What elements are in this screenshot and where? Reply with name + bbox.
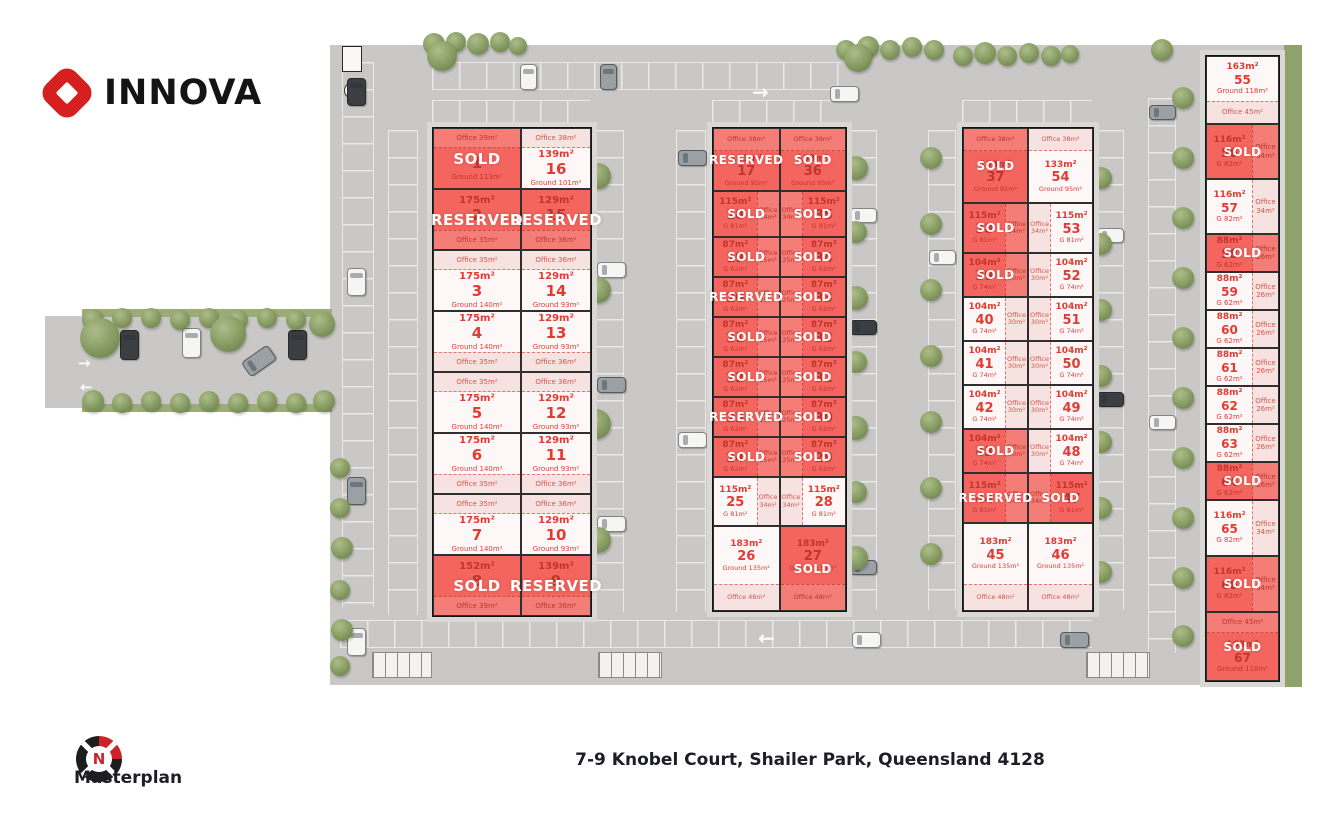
car-icon [600, 64, 617, 90]
tree-icon [953, 46, 973, 66]
unit-area: 104m² [968, 390, 1000, 401]
tree-icon [924, 40, 944, 60]
car-icon [678, 432, 707, 448]
east-green-strip [1284, 45, 1302, 687]
unit-area: 104m² [1055, 258, 1087, 269]
unit-37[interactable]: Office 38m²133m²37Ground 95m²SOLD [963, 128, 1028, 203]
status-badge: SOLD [781, 129, 846, 190]
unit-area: 104m² [1055, 390, 1087, 401]
unit-info: 88m²60G 62m² [1207, 311, 1252, 347]
status-badge: SOLD [714, 192, 779, 236]
unit-12[interactable]: Office 36m²129m²12Ground 93m² [521, 372, 591, 433]
status-badge: SOLD [781, 318, 846, 356]
ground-area: G 62m² [1216, 413, 1242, 421]
unit-number: 12 [546, 405, 567, 423]
unit-62[interactable]: 88m²62G 62m²Office 26m² [1206, 386, 1279, 424]
tree-icon [844, 416, 868, 440]
unit-number: 11 [546, 447, 567, 465]
masterplan-page: INNOVA →←→←Office 39m²1Ground 113m²SOLDO… [0, 0, 1338, 814]
unit-18[interactable]: 115m²18G 81m²Office 34m²SOLD [713, 191, 780, 237]
tree-icon [199, 391, 219, 411]
ground-area: Ground 93m² [533, 465, 580, 473]
car-icon [1149, 415, 1176, 430]
tree-icon [467, 33, 489, 55]
tree-icon [1061, 45, 1079, 63]
unit-52[interactable]: Office 30m²104m²52G 74m² [1028, 253, 1093, 297]
unit-7[interactable]: Office 35m²175m²7Ground 140m² [433, 494, 521, 555]
unit-info: 88m²62G 62m² [1207, 387, 1252, 423]
office-area-label: Office 30m² [1029, 430, 1051, 472]
car-icon [597, 262, 626, 278]
office-area-label: Office 30m² [1029, 254, 1051, 296]
unit-51[interactable]: Office 30m²104m²51G 74m² [1028, 297, 1093, 341]
ground-area: G 74m² [1059, 460, 1083, 468]
tree-icon [1172, 447, 1194, 469]
unit-58[interactable]: 88m²58G 62m²Office 26m²SOLD [1206, 234, 1279, 272]
unit-2[interactable]: 175m²2Office 35m²RESERVED [433, 189, 521, 250]
office-area-label: Office 48m² [1029, 584, 1092, 610]
unit-23[interactable]: 87m²23G 62m²Office 25m²RESERVED [713, 397, 780, 437]
tree-icon [80, 318, 120, 358]
tree-icon [1172, 267, 1194, 289]
car-icon [678, 150, 707, 166]
ground-area: Ground 140m² [452, 423, 503, 431]
unit-number: 42 [975, 401, 993, 416]
car-icon [347, 477, 366, 505]
unit-info: 104m²42G 74m² [964, 386, 1005, 428]
unit-info: 139m²16Ground 101m² [522, 148, 590, 188]
tree-icon [313, 390, 335, 412]
tree-icon [844, 156, 868, 180]
unit-5[interactable]: Office 35m²175m²5Ground 140m² [433, 372, 521, 433]
unit-46[interactable]: 183m²46Ground 135m²Office 48m² [1028, 523, 1093, 611]
unit-number: 25 [726, 495, 744, 510]
parking-stalls [676, 130, 706, 612]
unit-number: 5 [472, 405, 482, 423]
office-area-label: Office 26m² [1252, 387, 1278, 423]
car-icon [288, 330, 307, 360]
unit-number: 6 [472, 447, 482, 465]
status-badge: SOLD [1207, 613, 1278, 680]
unit-20[interactable]: 87m²20G 62m²Office 25m²RESERVED [713, 277, 780, 317]
parking-stalls [432, 62, 842, 90]
unit-number: 14 [546, 283, 567, 301]
office-area-label: Office 34m² [1252, 501, 1278, 555]
tree-icon [257, 391, 277, 411]
unit-number: 52 [1062, 269, 1080, 284]
tree-icon [427, 41, 457, 71]
tree-icon [330, 458, 350, 478]
unit-info: 183m²26Ground 135m² [714, 527, 779, 584]
ground-area: Ground 95m² [1039, 186, 1082, 194]
unit-53[interactable]: Office 34m²115m²53G 81m² [1028, 203, 1093, 253]
office-area-label: Office 45m² [1207, 101, 1278, 123]
unit-area: 183m² [979, 537, 1011, 548]
unit-27[interactable]: 183m²27Ground 135m²Office 48m²SOLD [780, 526, 847, 611]
tree-icon [170, 393, 190, 413]
status-badge: SOLD [781, 438, 846, 476]
tree-icon [1172, 567, 1194, 589]
unit-61[interactable]: 88m²61G 62m²Office 26m² [1206, 348, 1279, 386]
car-icon [929, 250, 956, 265]
unit-21[interactable]: 87m²21G 62m²Office 25m²SOLD [713, 317, 780, 357]
tree-icon [330, 656, 350, 676]
ground-area: G 82m² [1216, 215, 1242, 223]
unit-54[interactable]: Office 38m²133m²54Ground 95m² [1028, 128, 1093, 203]
tree-icon [286, 310, 306, 330]
unit-number: 62 [1221, 399, 1238, 413]
unit-39[interactable]: 104m²39G 74m²Office 30m²SOLD [963, 253, 1028, 297]
unit-19[interactable]: 87m²19G 62m²Office 25m²SOLD [713, 237, 780, 277]
tree-icon [170, 310, 190, 330]
car-icon [830, 86, 859, 102]
ground-area: G 62m² [1216, 299, 1242, 307]
office-area-label: Office 38m² [1029, 129, 1092, 151]
unit-info: 133m²54Ground 95m² [1029, 151, 1092, 202]
office-area-label: Office 35m² [434, 495, 520, 514]
office-area-label: Office 26m² [1252, 311, 1278, 347]
storage-units [372, 652, 432, 678]
unit-info: 115m²25G 81m² [714, 478, 757, 525]
tree-icon [1172, 507, 1194, 529]
parking-stalls [1148, 98, 1176, 653]
car-icon [850, 320, 877, 335]
office-area-label: Office 34m² [757, 478, 779, 525]
unit-number: 4 [472, 325, 482, 343]
unit-29[interactable]: Office 25m²87m²29G 62m²SOLD [780, 437, 847, 477]
parking-stalls [962, 100, 1092, 128]
tree-icon [920, 543, 942, 565]
status-badge: SOLD [781, 238, 846, 276]
car-icon [1097, 392, 1124, 407]
signage-icon [342, 46, 362, 72]
ground-area: G 81m² [723, 511, 747, 519]
unit-56[interactable]: 116m²56G 82m²Office 34m²SOLD [1206, 124, 1279, 179]
unit-11[interactable]: 129m²11Ground 93m²Office 36m² [521, 433, 591, 494]
traffic-arrow-icon: → [752, 82, 769, 102]
status-badge: SOLD [781, 527, 846, 610]
unit-30[interactable]: Office 25m²87m²30G 62m²SOLD [780, 397, 847, 437]
office-area-label: Office 48m² [964, 584, 1027, 610]
unit-info: 183m²45Ground 135m² [964, 524, 1027, 584]
unit-number: 54 [1051, 170, 1069, 185]
unit-44[interactable]: 115m²44G 81m²Office 34m²RESERVED [963, 473, 1028, 523]
unit-number: 60 [1221, 323, 1238, 337]
unit-32[interactable]: Office 25m²87m²32G 62m²SOLD [780, 317, 847, 357]
unit-57[interactable]: 116m²57G 82m²Office 34m² [1206, 179, 1279, 234]
unit-number: 26 [737, 549, 755, 564]
office-area-label: Office 35m² [434, 352, 520, 371]
ground-area: G 62m² [1216, 451, 1242, 459]
parking-stalls [432, 100, 590, 128]
parking-stalls [342, 62, 374, 607]
unit-43[interactable]: 104m²43G 74m²Office 30m²SOLD [963, 429, 1028, 473]
car-icon [347, 268, 366, 296]
ground-area: Ground 93m² [533, 545, 580, 553]
ground-area: Ground 135m² [972, 563, 1019, 571]
unit-35[interactable]: Office 34m²115m²35G 81m²SOLD [780, 191, 847, 237]
tree-icon [844, 44, 872, 72]
ground-area: Ground 140m² [452, 343, 503, 351]
tree-icon [845, 351, 867, 373]
tree-icon [330, 498, 350, 518]
office-area-label: Office 48m² [714, 584, 779, 610]
unit-50[interactable]: Office 30m²104m²50G 74m² [1028, 341, 1093, 385]
unit-33[interactable]: Office 25m²87m²33G 62m²SOLD [780, 277, 847, 317]
office-area-label: Office 30m² [1005, 342, 1027, 384]
unit-area: 116m² [1213, 190, 1245, 201]
unit-info: 129m²11Ground 93m² [522, 434, 590, 474]
unit-47[interactable]: Office 34m²115m²47G 81m²SOLD [1028, 473, 1093, 523]
status-badge: SOLD [434, 556, 520, 615]
unit-65[interactable]: 116m²65G 82m²Office 34m² [1206, 500, 1279, 556]
office-area-label: Office 26m² [1252, 425, 1278, 461]
status-badge: RESERVED [714, 278, 779, 316]
tree-icon [844, 286, 868, 310]
building-4: 163m²55Ground 118m²Office 45m²116m²56G 8… [1205, 55, 1280, 682]
car-icon [852, 632, 881, 648]
unit-number: 41 [975, 357, 993, 372]
ground-area: G 74m² [1059, 328, 1083, 336]
unit-38[interactable]: 115m²38G 81m²Office 34m²SOLD [963, 203, 1028, 253]
status-badge: SOLD [964, 129, 1027, 202]
unit-info: 183m²46Ground 135m² [1029, 524, 1092, 584]
car-icon [120, 330, 139, 360]
tree-icon [309, 311, 335, 337]
unit-number: 63 [1221, 437, 1238, 451]
unit-info: 129m²12Ground 93m² [522, 392, 590, 432]
unit-number: 55 [1234, 73, 1251, 87]
tree-icon [1172, 327, 1194, 349]
unit-area: 183m² [730, 539, 762, 550]
tree-icon [997, 46, 1017, 66]
unit-59[interactable]: 88m²59G 62m²Office 26m² [1206, 272, 1279, 310]
unit-info: 115m²28G 81m² [803, 478, 846, 525]
unit-info: 129m²10Ground 93m² [522, 514, 590, 554]
unit-9[interactable]: 139m²9Office 36m²RESERVED [521, 555, 591, 616]
parking-stalls [928, 130, 956, 610]
unit-6[interactable]: 175m²6Ground 140m²Office 35m² [433, 433, 521, 494]
tree-icon [1019, 43, 1039, 63]
unit-34[interactable]: Office 25m²87m²34G 62m²SOLD [780, 237, 847, 277]
ground-area: Ground 93m² [533, 301, 580, 309]
ground-area: G 74m² [972, 372, 996, 380]
unit-number: 59 [1221, 285, 1238, 299]
unit-area: 183m² [1044, 537, 1076, 548]
ground-area: Ground 140m² [452, 545, 503, 553]
tree-icon [920, 279, 942, 301]
unit-number: 50 [1062, 357, 1080, 372]
car-icon [347, 78, 366, 106]
unit-14[interactable]: Office 36m²129m²14Ground 93m² [521, 250, 591, 311]
unit-number: 61 [1221, 361, 1238, 375]
unit-4[interactable]: 175m²4Ground 140m²Office 35m² [433, 311, 521, 372]
unit-48[interactable]: Office 30m²104m²48G 74m² [1028, 429, 1093, 473]
unit-24[interactable]: 87m²24G 62m²Office 25m²SOLD [713, 437, 780, 477]
tree-icon [210, 316, 246, 352]
site-address: 7-9 Knobel Court, Shailer Park, Queensla… [500, 750, 1120, 770]
unit-number: 49 [1062, 401, 1080, 416]
unit-info: 88m²61G 62m² [1207, 349, 1252, 385]
ground-area: Ground 140m² [452, 301, 503, 309]
unit-info: 104m²48G 74m² [1051, 430, 1092, 472]
office-area-label: Office 35m² [434, 474, 520, 493]
ground-area: G 82m² [1216, 536, 1242, 544]
office-area-label: Office 30m² [1029, 342, 1051, 384]
tree-icon [509, 37, 527, 55]
unit-63[interactable]: 88m²63G 62m²Office 26m² [1206, 424, 1279, 462]
status-badge: SOLD [964, 430, 1027, 472]
unit-area: 88m² [1217, 274, 1243, 285]
ground-area: Ground 140m² [452, 465, 503, 473]
office-area-label: Office 35m² [434, 373, 520, 392]
tree-icon [141, 308, 161, 328]
parking-stalls [712, 100, 845, 128]
unit-13[interactable]: 129m²13Ground 93m²Office 36m² [521, 311, 591, 372]
unit-number: 65 [1221, 522, 1238, 536]
tree-icon [902, 37, 922, 57]
unit-22[interactable]: 87m²22G 62m²Office 25m²SOLD [713, 357, 780, 397]
status-badge: SOLD [781, 358, 846, 396]
unit-area: 88m² [1217, 388, 1243, 399]
office-area-label: Office 30m² [1029, 298, 1051, 340]
building-2: Office 38m²133m²17Ground 95m²RESERVEDOff… [712, 127, 847, 612]
unit-number: 51 [1062, 313, 1080, 328]
status-badge: RESERVED [434, 190, 520, 249]
unit-number: 57 [1221, 201, 1238, 215]
status-badge: SOLD [1029, 474, 1092, 522]
office-area-label: Office 26m² [1252, 273, 1278, 309]
unit-info: 104m²41G 74m² [964, 342, 1005, 384]
unit-28[interactable]: Office 34m²115m²28G 81m² [780, 477, 847, 526]
unit-1[interactable]: Office 39m²1Ground 113m²SOLD [433, 128, 521, 189]
ground-area: Ground 118m² [1217, 87, 1268, 95]
tree-icon [331, 619, 353, 641]
unit-info: 175m²7Ground 140m² [434, 514, 520, 554]
unit-41[interactable]: 104m²41G 74m²Office 30m² [963, 341, 1028, 385]
office-area-label: Office 38m² [522, 129, 590, 148]
tree-icon [331, 537, 353, 559]
tree-icon [490, 32, 510, 52]
building-1: Office 39m²1Ground 113m²SOLDOffice 38m²1… [432, 127, 592, 617]
unit-15[interactable]: 129m²15Office 36m²RESERVED [521, 189, 591, 250]
unit-25[interactable]: 115m²25G 81m²Office 34m² [713, 477, 780, 526]
unit-31[interactable]: Office 25m²87m²31G 62m²SOLD [780, 357, 847, 397]
office-area-label: Office 36m² [522, 373, 590, 392]
status-badge: SOLD [714, 438, 779, 476]
status-badge: RESERVED [522, 190, 590, 249]
office-area-label: Office 30m² [1005, 386, 1027, 428]
ground-area: Ground 101m² [531, 179, 582, 187]
unit-60[interactable]: 88m²60G 62m²Office 26m² [1206, 310, 1279, 348]
tree-icon [1172, 87, 1194, 109]
unit-area: 104m² [1055, 434, 1087, 445]
unit-info: 175m²5Ground 140m² [434, 392, 520, 432]
ground-area: G 74m² [1059, 372, 1083, 380]
status-badge: SOLD [1207, 235, 1278, 271]
ground-area: G 81m² [1059, 237, 1083, 245]
office-area-label: Office 30m² [1029, 386, 1051, 428]
unit-info: 104m²51G 74m² [1051, 298, 1092, 340]
unit-info: 116m²65G 82m² [1207, 501, 1252, 555]
unit-area: 163m² [1226, 62, 1258, 73]
unit-number: 13 [546, 325, 567, 343]
tree-icon [257, 308, 277, 328]
unit-area: 104m² [968, 346, 1000, 357]
unit-10[interactable]: Office 36m²129m²10Ground 93m² [521, 494, 591, 555]
car-icon [520, 64, 537, 90]
unit-66[interactable]: 116m²66G 82m²Office 34m²SOLD [1206, 556, 1279, 612]
unit-number: 10 [546, 527, 567, 545]
ground-area: G 62m² [1216, 375, 1242, 383]
status-badge: SOLD [714, 238, 779, 276]
tree-icon [1172, 207, 1194, 229]
parking-stalls [388, 130, 418, 615]
office-area-label: Office 35m² [434, 251, 520, 270]
car-icon [1149, 105, 1176, 120]
tree-icon [1151, 39, 1173, 61]
status-badge: SOLD [714, 318, 779, 356]
unit-number: 7 [472, 527, 482, 545]
unit-info: 129m²13Ground 93m² [522, 312, 590, 352]
tree-icon [1172, 625, 1194, 647]
office-area-label: Office 36m² [522, 495, 590, 514]
building-3: Office 38m²133m²37Ground 95m²SOLDOffice … [962, 127, 1094, 612]
unit-info: 163m²55Ground 118m² [1207, 57, 1278, 101]
tree-icon [1041, 46, 1061, 66]
unit-26[interactable]: 183m²26Ground 135m²Office 48m² [713, 526, 780, 611]
tree-icon [1172, 387, 1194, 409]
unit-40[interactable]: 104m²40G 74m²Office 30m² [963, 297, 1028, 341]
unit-info: 104m²40G 74m² [964, 298, 1005, 340]
parking-stalls [340, 620, 1092, 648]
unit-info: 129m²14Ground 93m² [522, 270, 590, 310]
unit-area: 88m² [1217, 312, 1243, 323]
tree-icon [920, 411, 942, 433]
unit-67[interactable]: Office 45m²163m²67Ground 118m²SOLD [1206, 612, 1279, 681]
status-badge: SOLD [714, 358, 779, 396]
office-area-label: Office 36m² [522, 251, 590, 270]
unit-55[interactable]: 163m²55Ground 118m²Office 45m² [1206, 56, 1279, 124]
status-badge: SOLD [781, 278, 846, 316]
ground-area: Ground 135m² [723, 565, 770, 573]
unit-16[interactable]: Office 38m²139m²16Ground 101m² [521, 128, 591, 189]
unit-number: 28 [815, 495, 833, 510]
status-badge: SOLD [1207, 557, 1278, 611]
tree-icon [880, 40, 900, 60]
tree-icon [1172, 147, 1194, 169]
tree-icon [920, 477, 942, 499]
unit-64[interactable]: 88m²64G 62m²Office 26m²SOLD [1206, 462, 1279, 500]
unit-info: 88m²63G 62m² [1207, 425, 1252, 461]
unit-36[interactable]: Office 38m²133m²36Ground 95m²SOLD [780, 128, 847, 191]
unit-45[interactable]: 183m²45Ground 135m²Office 48m² [963, 523, 1028, 611]
unit-42[interactable]: 104m²42G 74m²Office 30m² [963, 385, 1028, 429]
unit-49[interactable]: Office 30m²104m²49G 74m² [1028, 385, 1093, 429]
unit-3[interactable]: Office 35m²175m²3Ground 140m² [433, 250, 521, 311]
site-plan: →←→←Office 39m²1Ground 113m²SOLDOffice 3… [0, 0, 1338, 814]
unit-info: 115m²53G 81m² [1051, 204, 1092, 252]
status-badge: SOLD [964, 254, 1027, 296]
unit-info: 104m²52G 74m² [1051, 254, 1092, 296]
unit-info: 116m²57G 82m² [1207, 180, 1252, 233]
masterplan-label: Masterplan [74, 768, 182, 788]
unit-17[interactable]: Office 38m²133m²17Ground 95m²RESERVED [713, 128, 780, 191]
tree-icon [974, 42, 996, 64]
unit-info: 104m²50G 74m² [1051, 342, 1092, 384]
unit-8[interactable]: 152m²8Office 39m²SOLD [433, 555, 521, 616]
traffic-arrow-icon: → [78, 356, 91, 371]
